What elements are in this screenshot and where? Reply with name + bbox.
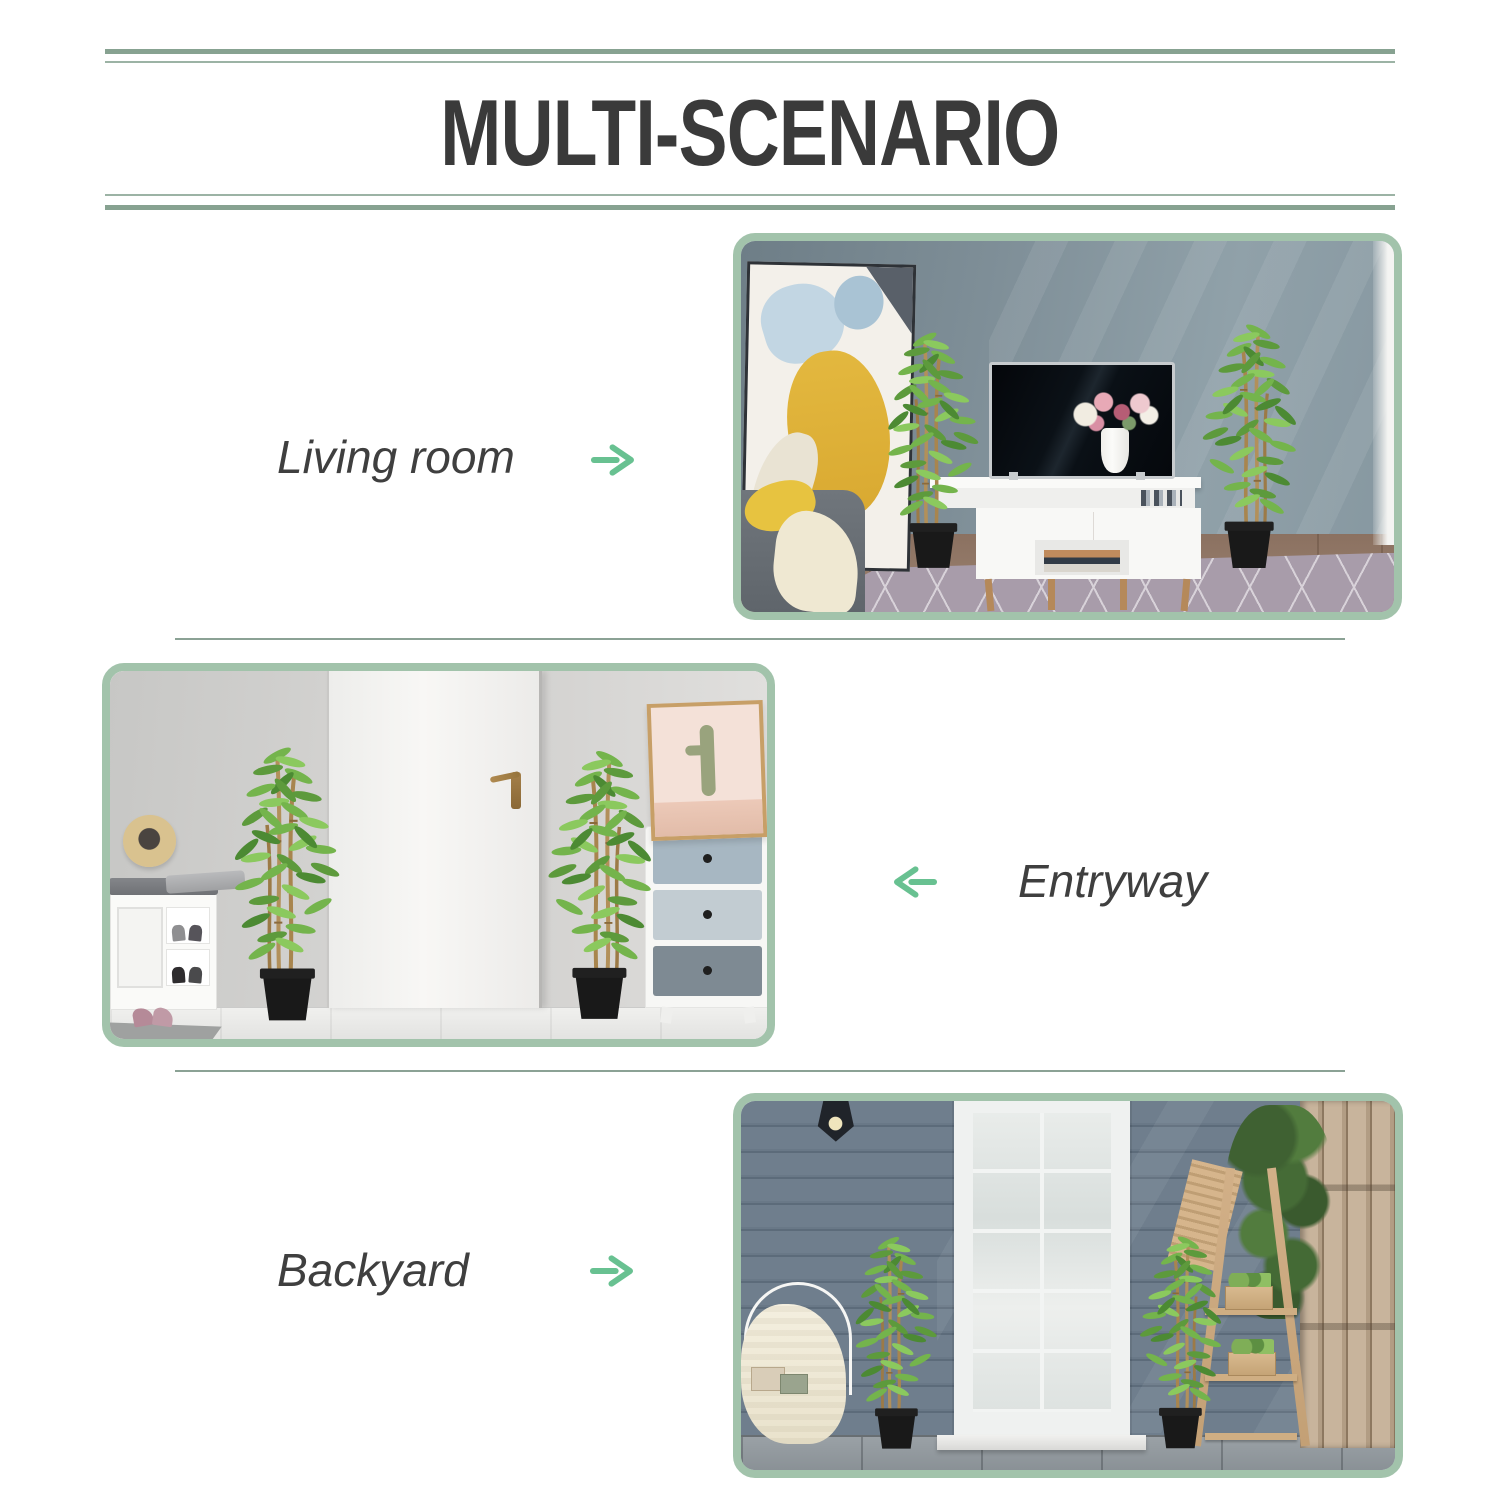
living-room-scene: [741, 241, 1394, 612]
door-glass: [973, 1113, 1111, 1412]
tv-stand-shelf: [937, 488, 1195, 508]
chest-leg: [743, 1006, 756, 1024]
tv-foot: [1009, 472, 1018, 480]
cabinet-niche: [1035, 540, 1130, 575]
shoe: [171, 924, 185, 941]
succulent: [1225, 1273, 1271, 1288]
print-cactus-arm: [684, 745, 701, 756]
product-infographic: MULTI-SCENARIO Living room: [0, 0, 1500, 1500]
page-title-text: MULTI-SCENARIO: [440, 86, 1059, 180]
arrow-left-icon: [886, 863, 940, 901]
shoe-shelf: [166, 907, 210, 944]
chest-leg: [660, 1006, 673, 1024]
drawer-knob: [703, 854, 712, 863]
ladder-shelf: [1205, 1433, 1297, 1440]
living-room-label: Living room: [277, 430, 515, 484]
flower-bouquet: [1069, 388, 1160, 433]
door-step: [937, 1435, 1146, 1450]
planter-box: [1225, 1286, 1273, 1310]
header-rule-top-thin: [105, 61, 1395, 63]
arrow-right-icon: [588, 441, 642, 479]
section-divider: [175, 638, 1345, 640]
flower-vase: [1101, 428, 1128, 473]
shoe: [171, 967, 185, 984]
header-rule-top-thick: [105, 49, 1395, 54]
tv-foot: [1136, 472, 1145, 480]
shoe: [188, 924, 202, 941]
books: [1141, 490, 1182, 505]
gift-box: [780, 1374, 808, 1394]
drawer-knob: [703, 966, 712, 975]
stand-leg: [1048, 579, 1055, 611]
page-title: MULTI-SCENARIO: [0, 86, 1500, 180]
header-rule-bottom-thick: [105, 205, 1395, 210]
shoe-bench: [110, 886, 217, 1009]
stand-leg: [1120, 579, 1127, 611]
section-divider: [175, 1070, 1345, 1072]
entryway-scene: [110, 671, 767, 1039]
succulent: [1228, 1339, 1274, 1354]
entryway-label: Entryway: [1018, 854, 1207, 908]
drawer: [653, 946, 762, 996]
print-desert: [654, 800, 763, 837]
arrow-right-icon: [587, 1252, 641, 1290]
sheer-curtain: [1373, 241, 1394, 545]
patio-door: [954, 1101, 1131, 1437]
drawer-chest: [645, 826, 769, 1008]
entryway-photo: [102, 663, 775, 1047]
front-door: [327, 671, 542, 1008]
tv-stand-cabinet: [976, 508, 1201, 578]
drawer-knob: [703, 910, 712, 919]
backyard-scene: [741, 1101, 1395, 1470]
backyard-label: Backyard: [277, 1243, 469, 1297]
shoe: [188, 967, 202, 984]
bench-door-panel: [117, 907, 163, 989]
living-room-photo: [733, 233, 1402, 620]
cactus-print: [646, 700, 767, 841]
drawer: [653, 834, 762, 884]
books: [1044, 550, 1120, 572]
backyard-photo: [733, 1093, 1403, 1478]
print-cactus: [699, 725, 716, 796]
planter-box: [1228, 1352, 1276, 1376]
shoe-shelf: [166, 949, 210, 986]
drawer: [653, 890, 762, 940]
header-rule-bottom-thin: [105, 194, 1395, 196]
